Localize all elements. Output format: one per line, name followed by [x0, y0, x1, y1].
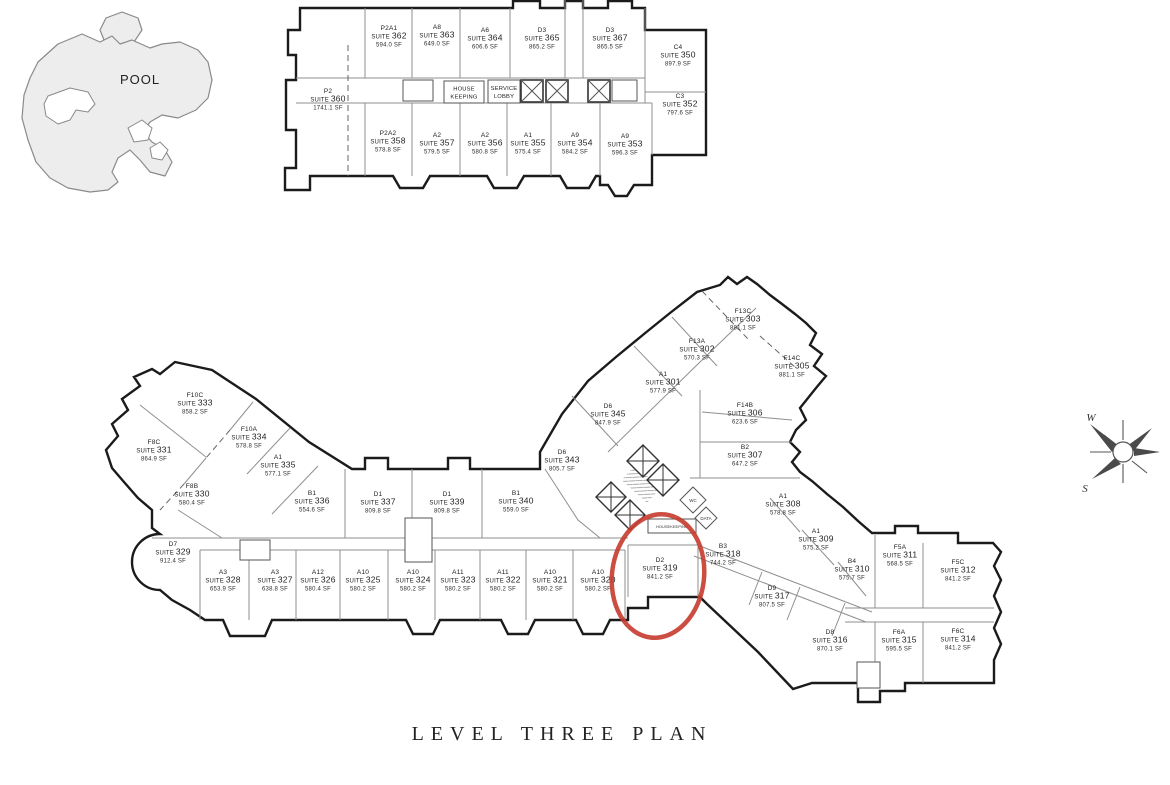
- stairwell-bar-west: [240, 540, 270, 560]
- plan-title: LEVEL THREE PLAN: [412, 723, 713, 745]
- housekeeping-closet-label: HOUSEKEEPING: [656, 524, 688, 529]
- main-building: WC DATA HOUSEKEEPING F10CSUITE 333858.2 …: [106, 277, 1001, 702]
- pool-label: POOL: [120, 72, 160, 87]
- compass-rose: W S: [1082, 412, 1160, 495]
- main-building-outline: [106, 277, 1001, 702]
- stairwell-bar-mid: [405, 518, 432, 562]
- compass-hub: [1113, 442, 1133, 462]
- housekeeping-room: HOUSE KEEPING: [444, 81, 484, 103]
- stairwell-east: [612, 80, 637, 101]
- stairwell-east-bar: [857, 662, 880, 688]
- upper-elevators: [521, 80, 610, 102]
- data-label: DATA: [700, 516, 711, 521]
- stairwell-west: [403, 80, 433, 101]
- compass-west-label: W: [1086, 412, 1096, 424]
- upper-building: HOUSE KEEPING SERVICE LOBBY P2SUITE 3601…: [285, 0, 706, 196]
- pool-area: POOL: [22, 12, 212, 192]
- floor-plan-page: POOL HOUSE KEEPING SERVICE LOBBY: [0, 0, 1170, 785]
- floor-plan-svg: POOL HOUSE KEEPING SERVICE LOBBY: [0, 0, 1170, 785]
- housekeeping-room-label-1: HOUSE: [453, 87, 475, 93]
- service-lobby: SERVICE LOBBY: [488, 80, 520, 103]
- housekeeping-room-label-2: KEEPING: [450, 95, 477, 101]
- service-lobby-label-1: SERVICE: [491, 86, 518, 92]
- service-lobby-label-2: LOBBY: [494, 94, 514, 100]
- compass-south-label: S: [1082, 483, 1088, 495]
- wc-label: WC: [689, 498, 697, 503]
